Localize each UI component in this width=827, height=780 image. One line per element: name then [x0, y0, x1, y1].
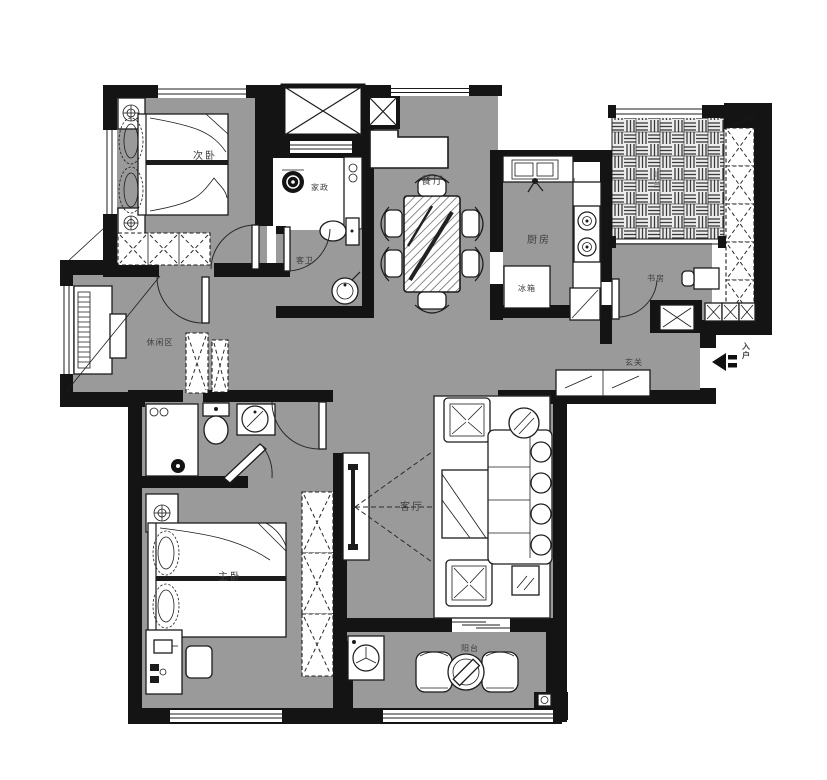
room-label: 阳台 [461, 643, 479, 653]
bed [138, 114, 228, 215]
piano [74, 286, 112, 374]
room-label: 客厅 [400, 500, 424, 513]
room-label: 家政 [311, 182, 329, 192]
shoe-cabinet [556, 370, 650, 396]
cabinet-row [705, 303, 755, 321]
lamp-icon [124, 216, 138, 230]
entry-opening [700, 348, 716, 388]
kitchen-opening [490, 252, 503, 284]
barrel-chair [416, 652, 452, 692]
storage-bench [118, 233, 210, 265]
floor-plan-canvas: 次卧 家政 客卫 餐厅 [0, 0, 827, 780]
sliding-door [452, 618, 510, 632]
room-label: 厨房 [527, 233, 551, 246]
armchair [446, 560, 492, 606]
vanity-mirror [237, 404, 275, 435]
washing-machine-icon [348, 636, 384, 680]
cabinet-niche [660, 305, 694, 330]
barrel-chair [482, 652, 518, 692]
wardrobe [302, 492, 333, 676]
sofa [488, 430, 552, 564]
room-label: 书房 [647, 273, 665, 283]
service-balcony-decking [612, 117, 724, 239]
room-label: 主卧 [218, 570, 242, 583]
desk [682, 268, 719, 289]
room-label: 玄关 [625, 357, 643, 367]
stove-icon [574, 206, 600, 262]
side-cabinets [186, 333, 228, 393]
room-label: 客卫 [296, 255, 314, 265]
refrigerator: 冰箱 [504, 266, 550, 308]
square-side-table [512, 566, 539, 595]
desk-chair [186, 646, 212, 678]
toilet-icon [203, 403, 229, 444]
elevator-shaft [283, 86, 363, 136]
floor-plan-drawing: 次卧 家政 客卫 餐厅 [0, 0, 827, 780]
room-label: 休闲区 [147, 337, 174, 347]
lamp-icon [154, 505, 170, 521]
fridge-label: 冰箱 [518, 283, 536, 293]
round-table [448, 654, 484, 690]
room-label: 次卧 [193, 149, 217, 162]
shower [146, 404, 198, 476]
dining-table [404, 196, 460, 292]
coffee-table [442, 470, 490, 538]
armchair [444, 398, 490, 442]
floor-drain [538, 694, 551, 706]
wardrobe-column [726, 128, 754, 318]
round-side-table [509, 408, 539, 438]
room-label: 阳台 [653, 171, 662, 189]
entry-label: 入户 [742, 342, 751, 360]
desk [146, 630, 182, 694]
duct-shaft [368, 96, 398, 127]
lamp-icon [123, 105, 139, 121]
entry-arrow-icon: 入户 [712, 342, 751, 371]
bed [148, 523, 286, 637]
corner-cabinet [570, 288, 600, 320]
room-label: 餐厅 [421, 174, 445, 187]
